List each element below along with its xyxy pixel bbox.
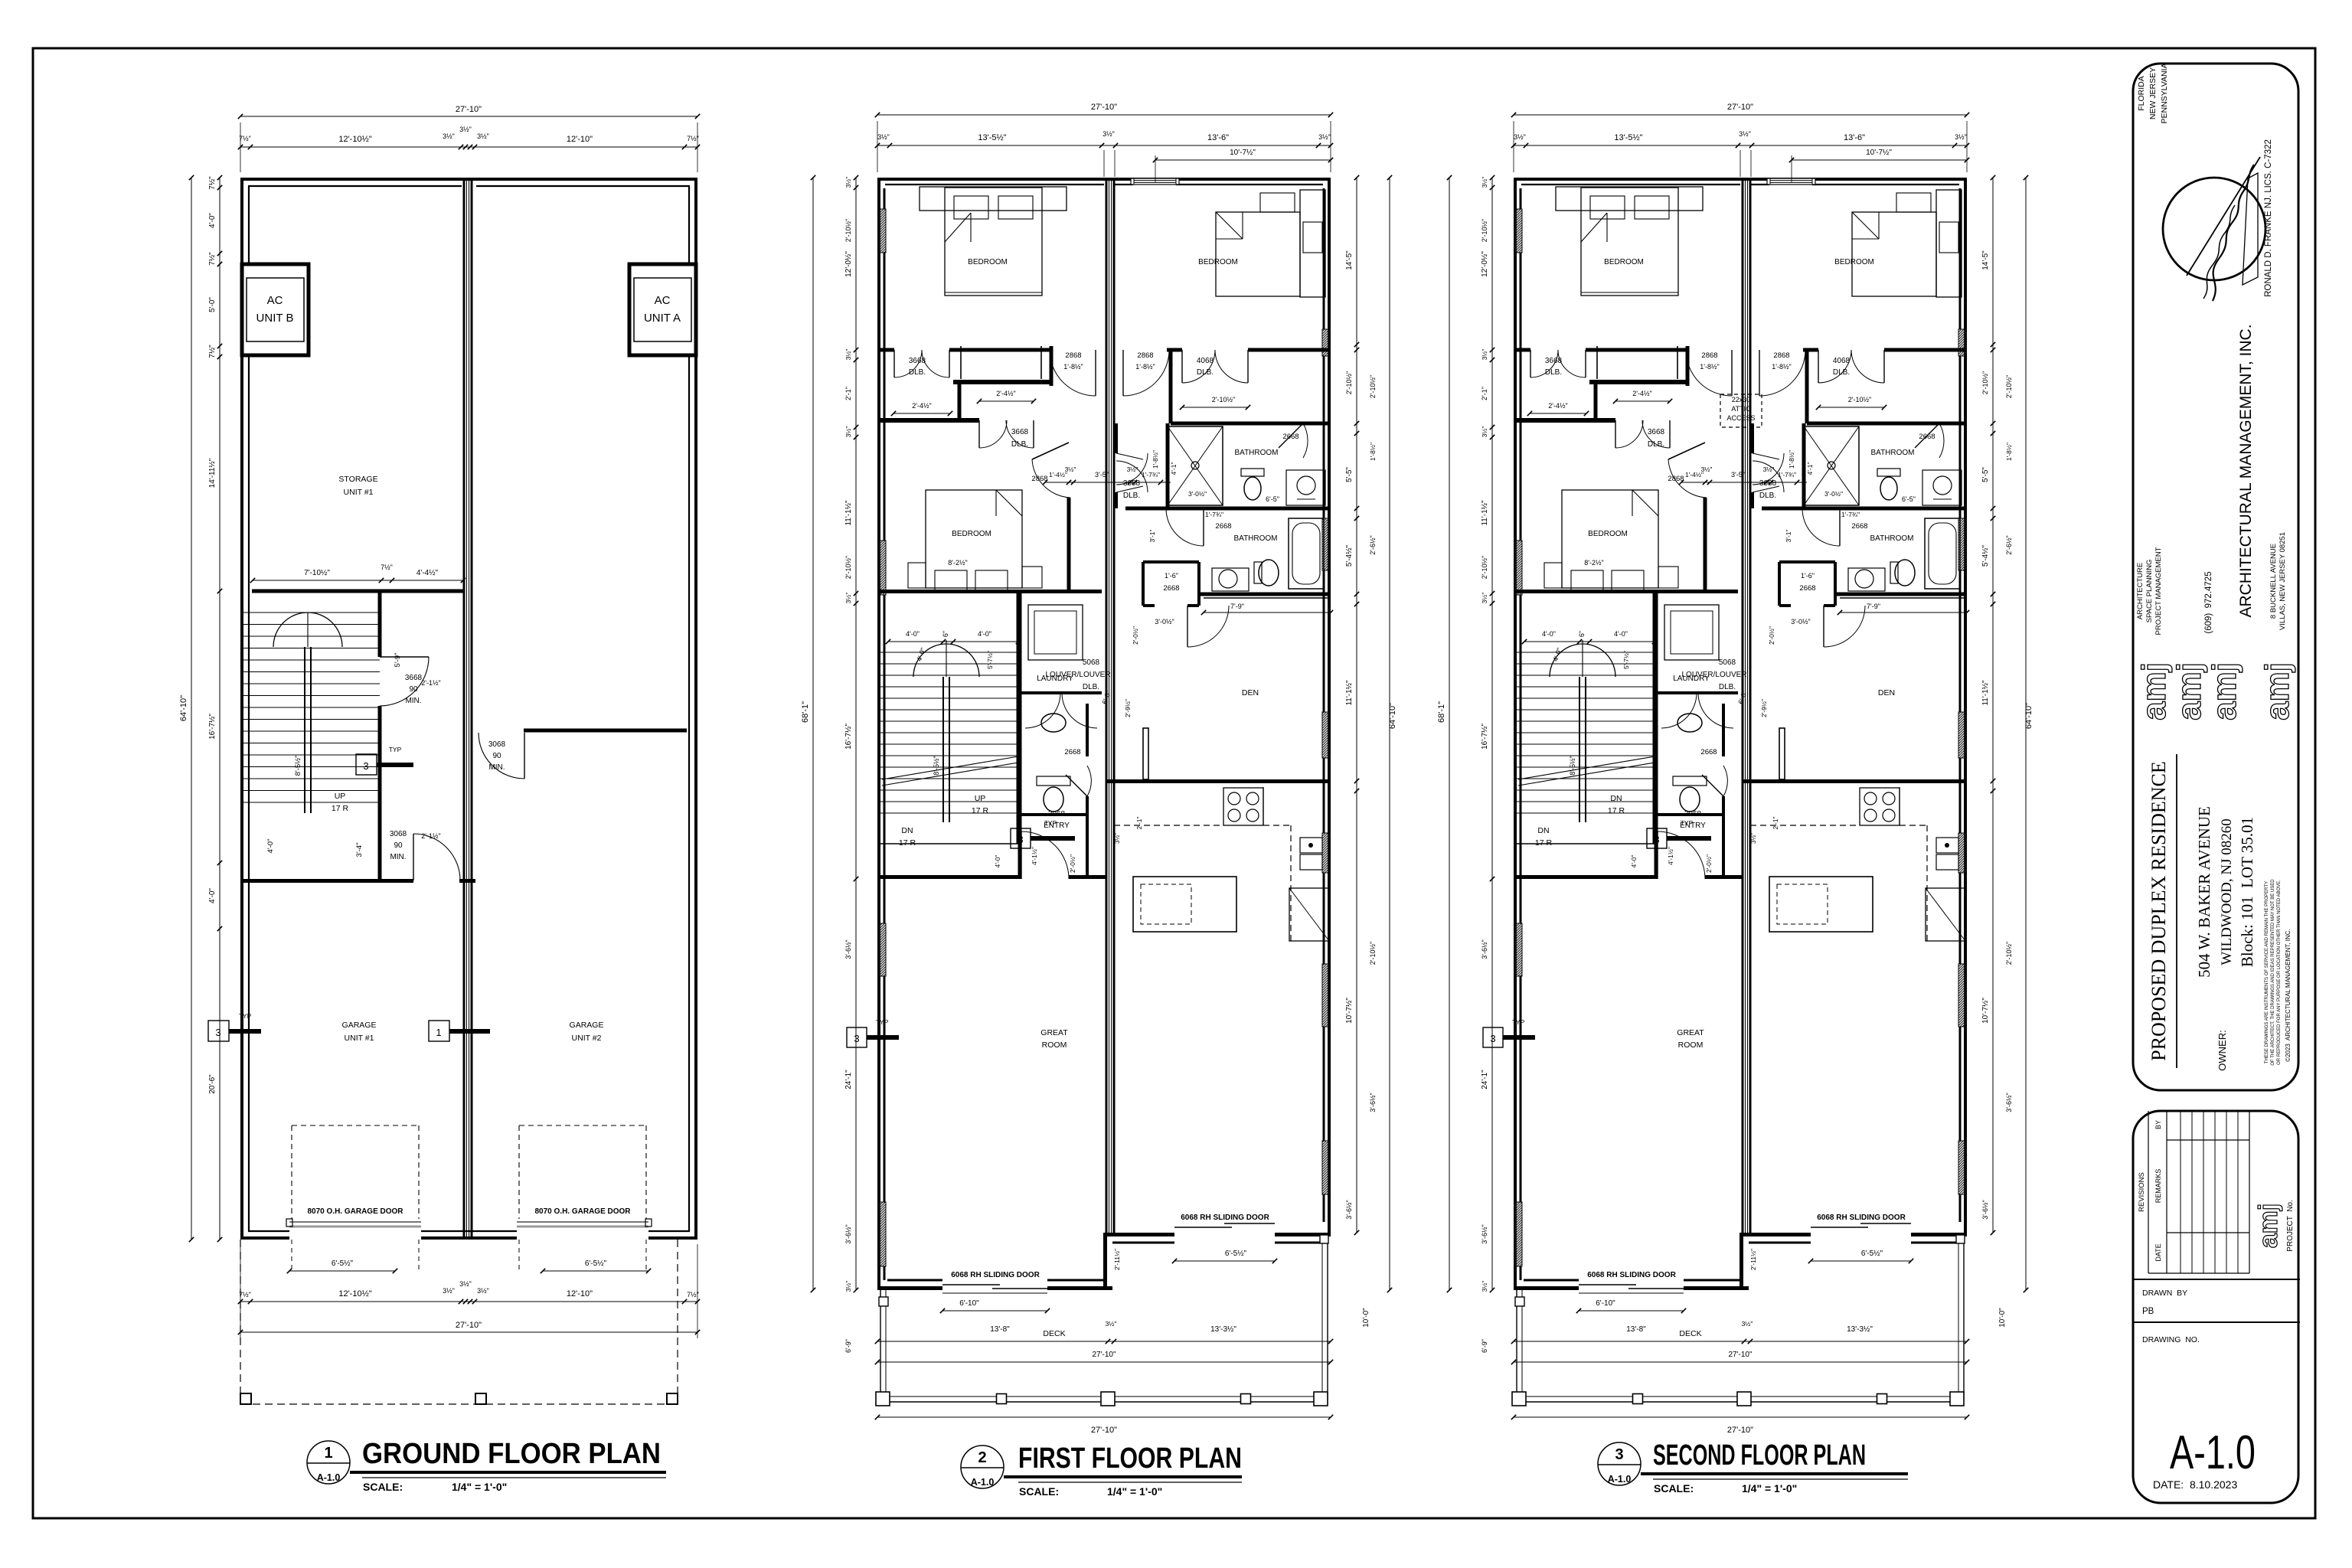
svg-text:2'-1": 2'-1" (844, 387, 852, 400)
svg-text:VILLAS, NEW JERSEY 08251: VILLAS, NEW JERSEY 08251 (2278, 532, 2287, 630)
svg-text:1'-7¾": 1'-7¾" (1841, 511, 1860, 518)
svg-text:2'-10½": 2'-10½" (844, 556, 852, 579)
svg-text:2'-0½": 2'-0½" (1069, 854, 1076, 873)
svg-text:DLB.: DLB. (909, 368, 926, 377)
svg-text:2'-10½": 2'-10½" (1369, 942, 1377, 965)
svg-text:8'-5½": 8'-5½" (933, 756, 940, 775)
svg-text:GARAGE: GARAGE (342, 1021, 377, 1030)
svg-text:10'-7½": 10'-7½" (1981, 998, 1990, 1024)
svg-text:2'-4½": 2'-4½" (1548, 402, 1567, 410)
svg-text:2'-10½": 2'-10½" (1848, 396, 1871, 403)
svg-text:2'-10½": 2'-10½" (1981, 371, 1989, 394)
svg-text:UNIT #1: UNIT #1 (345, 1034, 374, 1043)
svg-text:PROPOSED DUPLEX RESIDENCE: PROPOSED DUPLEX RESIDENCE (2148, 761, 2170, 1061)
svg-text:3½": 3½" (1114, 833, 1121, 844)
svg-text:4'-0": 4'-0" (1630, 855, 1638, 868)
svg-text:3668: 3668 (1011, 428, 1029, 436)
svg-text:7½": 7½" (239, 1291, 251, 1298)
svg-text:17 R: 17 R (1608, 806, 1625, 815)
svg-text:64'-10": 64'-10" (1388, 703, 1397, 729)
svg-text:3½": 3½" (1481, 177, 1488, 188)
svg-text:12'-10½": 12'-10½" (338, 135, 371, 144)
svg-text:DEN: DEN (1242, 688, 1259, 697)
svg-text:1'-8½": 1'-8½" (1788, 450, 1795, 469)
svg-text:24'-1": 24'-1" (844, 1070, 853, 1089)
svg-text:MIN.: MIN. (405, 697, 421, 705)
svg-text:3'-6½": 3'-6½" (1345, 1200, 1353, 1219)
svg-text:DLB.: DLB. (1833, 368, 1850, 377)
svg-text:DRAWING NO.: DRAWING NO. (2142, 1335, 2200, 1344)
svg-text:6'-5½": 6'-5½" (1861, 1249, 1883, 1258)
svg-text:10'-7½": 10'-7½" (1230, 149, 1256, 157)
svg-text:LOUVER/LOUVER: LOUVER/LOUVER (1045, 671, 1110, 679)
svg-text:24'-1": 24'-1" (1481, 1070, 1489, 1089)
svg-text:3½": 3½" (844, 1281, 852, 1292)
svg-text:12'-10½": 12'-10½" (338, 1289, 371, 1298)
svg-text:THESE DRAWINGS ARE INSTRUMENTS: THESE DRAWINGS ARE INSTRUMENTS OF SERVIC… (2265, 881, 2269, 1063)
svg-text:3'-0½": 3'-0½" (1824, 490, 1843, 498)
svg-text:3668: 3668 (405, 674, 423, 682)
svg-text:11'-1½": 11'-1½" (844, 500, 853, 526)
svg-text:2'-10½": 2'-10½" (1345, 371, 1353, 394)
svg-text:64'-10": 64'-10" (179, 695, 188, 721)
svg-text:BEDROOM: BEDROOM (952, 530, 991, 538)
svg-text:7½": 7½" (381, 563, 393, 571)
svg-text:6'-5½": 6'-5½" (585, 1259, 607, 1268)
svg-text:12'-10": 12'-10" (567, 135, 593, 144)
svg-text:2668: 2668 (1282, 433, 1298, 441)
svg-text:1'-6": 1'-6" (1165, 572, 1178, 580)
svg-text:6": 6" (942, 631, 949, 637)
svg-text:UP: UP (975, 794, 986, 803)
svg-text:11'-1½": 11'-1½" (1981, 680, 1990, 706)
svg-text:3½": 3½" (1750, 833, 1757, 844)
svg-text:OWNER:: OWNER: (2216, 1030, 2228, 1070)
svg-text:REMARKS: REMARKS (2154, 1169, 2162, 1204)
svg-text:4'-4½": 4'-4½" (416, 569, 439, 577)
svg-text:3'-5": 3'-5" (1731, 471, 1745, 479)
svg-text:6'-5½": 6'-5½" (1225, 1249, 1247, 1258)
svg-text:3: 3 (215, 1027, 220, 1038)
svg-text:NEW JERSEY: NEW JERSEY (2148, 67, 2158, 119)
svg-text:4'-0": 4'-0" (994, 855, 1001, 868)
svg-text:3½": 3½" (1481, 426, 1488, 438)
svg-text:AC: AC (655, 294, 671, 307)
svg-text:2668: 2668 (1799, 584, 1815, 593)
svg-text:LOUVER/LOUVER: LOUVER/LOUVER (1681, 671, 1746, 679)
svg-text:6'-5": 6'-5" (1902, 495, 1916, 503)
svg-text:3½": 3½" (1739, 130, 1751, 138)
svg-text:4'-0": 4'-0" (208, 213, 217, 228)
svg-text:3½": 3½" (1481, 593, 1488, 604)
svg-text:3½": 3½" (443, 1287, 455, 1295)
svg-text:PB: PB (2142, 1307, 2154, 1316)
svg-text:7½": 7½" (208, 176, 217, 190)
svg-text:27'-10": 27'-10" (456, 105, 482, 114)
svg-text:2'-10½": 2'-10½" (1481, 556, 1488, 579)
svg-text:3: 3 (1654, 834, 1659, 845)
svg-text:10'-7½": 10'-7½" (1866, 149, 1892, 157)
svg-text:BEDROOM: BEDROOM (1604, 258, 1644, 266)
svg-text:3½": 3½" (1955, 133, 1967, 141)
svg-text:1'-8½": 1'-8½" (1151, 450, 1159, 469)
svg-text:10'-0": 10'-0" (1998, 1308, 2007, 1328)
svg-text:DLB.: DLB. (1011, 440, 1028, 449)
svg-text:PROJECT No.: PROJECT No. (2286, 1200, 2295, 1252)
svg-text:WILDWOOD, NJ 08260: WILDWOOD, NJ 08260 (2219, 818, 2235, 965)
svg-text:17 R: 17 R (899, 838, 916, 848)
svg-text:5068: 5068 (1719, 658, 1736, 667)
svg-text:DECK: DECK (1679, 1329, 1701, 1338)
svg-text:2868: 2868 (1701, 351, 1717, 360)
svg-text:TYP: TYP (1512, 1018, 1525, 1026)
svg-text:27'-10": 27'-10" (1727, 1426, 1753, 1435)
svg-text:3½": 3½" (844, 177, 852, 188)
svg-text:1'-8½": 1'-8½" (1772, 363, 1791, 371)
svg-text:A-1.0: A-1.0 (1608, 1474, 1632, 1485)
svg-text:DRAWN BY: DRAWN BY (2142, 1289, 2187, 1298)
svg-text:1'-8½": 1'-8½" (2005, 443, 2013, 461)
svg-text:2'-10½": 2'-10½" (1369, 375, 1377, 398)
svg-text:2'-4½": 2'-4½" (912, 402, 931, 410)
svg-text:4'-0": 4'-0" (1614, 630, 1628, 638)
svg-text:2'-11½": 2'-11½" (1113, 1249, 1121, 1270)
svg-text:ROOM: ROOM (1678, 1040, 1704, 1050)
svg-text:8070 O.H. GARAGE DOOR: 8070 O.H. GARAGE DOOR (534, 1207, 631, 1216)
svg-text:2668: 2668 (1215, 522, 1231, 531)
svg-text:13'-5½": 13'-5½" (1614, 133, 1642, 142)
svg-text:BATHROOM: BATHROOM (1870, 534, 1913, 543)
svg-text:90: 90 (409, 685, 418, 694)
svg-text:6'-9": 6'-9" (844, 1339, 852, 1353)
svg-text:2'-1½": 2'-1½" (421, 832, 440, 840)
svg-text:2'-6½": 2'-6½" (2005, 535, 2013, 554)
svg-text:7½": 7½" (239, 135, 251, 142)
svg-text:3668: 3668 (909, 357, 926, 365)
svg-text:1/4" = 1'-0": 1/4" = 1'-0" (1107, 1485, 1162, 1498)
svg-text:3'-6½": 3'-6½" (844, 1224, 852, 1243)
svg-text:6": 6" (1578, 631, 1586, 637)
svg-text:7½": 7½" (208, 345, 217, 358)
svg-text:4068: 4068 (1833, 357, 1851, 365)
svg-text:SCALE:: SCALE: (1019, 1485, 1059, 1498)
svg-text:20'-6": 20'-6" (208, 1074, 217, 1094)
svg-text:13'-5½": 13'-5½" (978, 133, 1006, 142)
svg-text:90: 90 (492, 752, 501, 760)
svg-text:3½": 3½" (1127, 465, 1138, 473)
svg-text:©2023 ARCHITECTURAL MANAGEMEN: ©2023 ARCHITECTURAL MANAGEMENT, INC. (2285, 929, 2292, 1062)
svg-text:Block: 101 LOT 35.01: Block: 101 LOT 35.01 (2238, 817, 2256, 967)
svg-text:2668: 2668 (1163, 584, 1179, 593)
svg-text:1'-8½": 1'-8½" (1700, 363, 1719, 371)
svg-text:SCALE:: SCALE: (1654, 1482, 1694, 1494)
svg-text:2'-11½": 2'-11½" (1749, 1249, 1757, 1270)
svg-text:4'-1": 4'-1" (1170, 462, 1178, 475)
svg-text:27'-10": 27'-10" (1091, 1426, 1117, 1435)
svg-text:BEDROOM: BEDROOM (1588, 530, 1628, 538)
svg-text:3½": 3½" (443, 132, 455, 140)
svg-text:6'-10": 6'-10" (959, 1299, 979, 1308)
svg-text:3'-6½": 3'-6½" (2005, 1093, 2013, 1112)
svg-text:amj: amj (2206, 662, 2243, 720)
svg-text:MIN.: MIN. (488, 763, 505, 772)
svg-text:4'-0": 4'-0" (978, 630, 991, 638)
svg-text:RONALD D. FRANKE NJ. LICS. C-7: RONALD D. FRANKE NJ. LICS. C-7322 (2264, 139, 2273, 297)
svg-text:ARCHITECTURE: ARCHITECTURE (2136, 563, 2145, 619)
svg-text:TYP: TYP (1681, 819, 1694, 827)
svg-text:DLB.: DLB. (1759, 492, 1776, 500)
svg-text:1/4" = 1'-0": 1/4" = 1'-0" (452, 1481, 507, 1493)
svg-text:10'-7½": 10'-7½" (1345, 998, 1354, 1024)
svg-text:3½": 3½" (844, 349, 852, 361)
svg-text:14'-5": 14'-5" (1981, 250, 1990, 270)
svg-text:1'-7¾": 1'-7¾" (1778, 471, 1796, 479)
svg-text:14'-11½": 14'-11½" (208, 458, 217, 488)
svg-text:DEN: DEN (1878, 688, 1895, 697)
svg-text:GREAT: GREAT (1677, 1028, 1704, 1037)
svg-text:DATE: DATE (2154, 1243, 2162, 1261)
svg-text:3068: 3068 (488, 740, 506, 749)
svg-text:1: 1 (436, 1027, 441, 1038)
svg-text:4'-0": 4'-0" (1542, 630, 1556, 638)
svg-text:DN: DN (1610, 794, 1622, 803)
svg-text:22x30: 22x30 (1732, 396, 1751, 403)
svg-text:504 W. BAKER AVENUE: 504 W. BAKER AVENUE (2195, 806, 2213, 978)
svg-text:6'-10": 6'-10" (1596, 1299, 1615, 1308)
svg-text:amj: amj (2259, 662, 2296, 720)
svg-text:3'-6½": 3'-6½" (1981, 1200, 1989, 1219)
svg-text:3'-4": 3'-4" (355, 843, 364, 857)
svg-text:13'-6": 13'-6" (1207, 133, 1229, 142)
svg-text:8 BUCKNELL AVENUE: 8 BUCKNELL AVENUE (2269, 544, 2278, 619)
svg-text:BATHROOM: BATHROOM (1870, 449, 1914, 457)
svg-text:8'-2½": 8'-2½" (948, 559, 967, 567)
svg-text:OR REPRODUCED FOR ANY PURPOSE: OR REPRODUCED FOR ANY PURPOSE OR LOCATIO… (2277, 880, 2282, 1065)
svg-text:7'-10½": 7'-10½" (304, 569, 330, 577)
svg-text:1'-8½": 1'-8½" (1369, 443, 1377, 461)
svg-text:6068 RH SLIDING DOOR: 6068 RH SLIDING DOOR (1817, 1214, 1906, 1222)
svg-text:3668: 3668 (1545, 357, 1563, 365)
svg-text:8'-5½": 8'-5½" (1569, 756, 1576, 775)
svg-text:6068 RH SLIDING DOOR: 6068 RH SLIDING DOOR (1587, 1271, 1676, 1279)
svg-text:16'-7½": 16'-7½" (844, 724, 853, 750)
svg-text:12'-0½": 12'-0½" (1481, 251, 1489, 277)
svg-text:3½": 3½" (1514, 133, 1526, 141)
svg-text:UP: UP (335, 792, 346, 801)
svg-text:2868: 2868 (1137, 351, 1153, 360)
svg-text:FIRST FLOOR PLAN: FIRST FLOOR PLAN (1018, 1442, 1242, 1475)
svg-text:BEDROOM: BEDROOM (968, 258, 1008, 266)
svg-text:amj: amj (2135, 662, 2173, 720)
svg-text:7'-9": 7'-9" (1867, 603, 1880, 610)
svg-text:3068: 3068 (1684, 810, 1702, 818)
svg-text:2'-10½": 2'-10½" (844, 219, 852, 242)
svg-text:FLORIDA: FLORIDA (2137, 76, 2146, 111)
svg-text:3½": 3½" (1742, 1320, 1753, 1328)
svg-text:3: 3 (363, 760, 368, 772)
svg-text:DLB.: DLB. (1545, 368, 1562, 377)
svg-text:3½": 3½" (477, 132, 489, 140)
svg-text:6068 RH SLIDING DOOR: 6068 RH SLIDING DOOR (951, 1271, 1040, 1279)
svg-text:13'-3½": 13'-3½" (1210, 1325, 1236, 1334)
svg-text:6'-5½": 6'-5½" (332, 1259, 354, 1268)
svg-text:ARCHITECTURAL MANAGEMENT, INC.: ARCHITECTURAL MANAGEMENT, INC. (2237, 324, 2255, 617)
svg-text:TYP: TYP (389, 746, 402, 753)
svg-text:3: 3 (1615, 1446, 1623, 1463)
svg-text:27'-10": 27'-10" (1727, 103, 1753, 112)
svg-text:16'-7½": 16'-7½" (1481, 724, 1489, 750)
svg-text:DATE: 8.10.2023: DATE: 8.10.2023 (2153, 1478, 2237, 1491)
svg-text:4'-1½": 4'-1½" (1667, 847, 1674, 865)
svg-text:DN: DN (1537, 826, 1549, 835)
svg-text:8'-5½": 8'-5½" (294, 756, 302, 776)
svg-text:3: 3 (1490, 1033, 1495, 1044)
svg-text:2'-1": 2'-1" (1481, 387, 1488, 400)
svg-text:7'-9": 7'-9" (1230, 603, 1244, 610)
svg-text:7½": 7½" (687, 135, 699, 142)
svg-text:DLB.: DLB. (1197, 368, 1214, 377)
svg-text:11'-1½": 11'-1½" (1345, 680, 1354, 706)
svg-text:A-1.0: A-1.0 (2170, 1426, 2256, 1479)
svg-text:BATHROOM: BATHROOM (1234, 449, 1278, 457)
svg-text:2'-9½": 2'-9½" (1760, 699, 1768, 717)
svg-text:27'-10": 27'-10" (1091, 103, 1117, 112)
svg-text:AC: AC (267, 294, 283, 307)
svg-text:STORAGE: STORAGE (338, 475, 377, 484)
svg-text:3½": 3½" (1701, 465, 1713, 473)
svg-text:TYP: TYP (239, 1012, 252, 1020)
svg-text:2'-10½": 2'-10½" (1481, 219, 1488, 242)
svg-text:DN: DN (901, 826, 913, 835)
svg-text:3068: 3068 (390, 830, 407, 838)
svg-text:A-1.0: A-1.0 (971, 1477, 995, 1488)
svg-text:10'-0": 10'-0" (1362, 1308, 1370, 1328)
svg-text:1'-8½": 1'-8½" (1135, 363, 1155, 371)
svg-text:5068: 5068 (1083, 658, 1100, 667)
svg-text:3½": 3½" (1481, 1281, 1488, 1292)
svg-text:BY: BY (2154, 1120, 2162, 1129)
svg-text:5'-7½": 5'-7½" (986, 651, 994, 669)
svg-text:4'-1": 4'-1" (1806, 462, 1814, 475)
svg-text:2'-1½": 2'-1½" (421, 679, 440, 687)
svg-text:GREAT: GREAT (1040, 1028, 1068, 1037)
svg-text:2: 2 (978, 1449, 986, 1466)
svg-text:3'-0½": 3'-0½" (1188, 490, 1207, 498)
svg-text:3'-0½": 3'-0½" (1791, 618, 1810, 626)
svg-text:3½": 3½" (1763, 465, 1775, 473)
svg-text:2'-10½": 2'-10½" (2005, 375, 2013, 398)
svg-text:3'-6½": 3'-6½" (844, 939, 852, 959)
svg-text:1'-7¾": 1'-7¾" (1205, 511, 1223, 518)
svg-text:13'-3½": 13'-3½" (1847, 1325, 1873, 1334)
svg-text:12'-10": 12'-10" (567, 1289, 593, 1298)
svg-text:68'-1": 68'-1" (801, 701, 810, 723)
svg-text:(609) 972.4725: (609) 972.4725 (2204, 571, 2213, 633)
svg-text:5'-0": 5'-0" (208, 297, 217, 312)
svg-text:68'-1": 68'-1" (1437, 701, 1446, 723)
svg-text:TYP: TYP (876, 1018, 889, 1026)
svg-text:GROUND FLOOR PLAN: GROUND FLOOR PLAN (362, 1438, 661, 1470)
svg-text:3½": 3½" (459, 126, 472, 133)
svg-text:5'-7½": 5'-7½" (1622, 651, 1630, 669)
svg-text:GARAGE: GARAGE (570, 1021, 604, 1030)
svg-text:2'-0½": 2'-0½" (1705, 854, 1713, 873)
svg-text:6068 RH SLIDING DOOR: 6068 RH SLIDING DOOR (1181, 1214, 1269, 1222)
svg-text:2'-9½": 2'-9½" (1124, 699, 1132, 717)
svg-text:MIN.: MIN. (390, 853, 406, 861)
svg-text:REVISIONS: REVISIONS (2138, 1172, 2146, 1212)
svg-text:2'-6½": 2'-6½" (1369, 535, 1377, 554)
svg-text:2668: 2668 (1064, 748, 1080, 756)
svg-text:6'-5": 6'-5" (1266, 495, 1279, 503)
svg-text:1'-8½": 1'-8½" (1063, 363, 1083, 371)
svg-text:3½": 3½" (844, 593, 852, 604)
svg-text:3'-5": 3'-5" (1095, 471, 1109, 479)
svg-text:64'-10": 64'-10" (2024, 703, 2033, 729)
svg-text:3½": 3½" (1481, 349, 1488, 361)
svg-text:3½": 3½" (1065, 465, 1076, 473)
svg-text:DLB.: DLB. (1123, 492, 1140, 500)
svg-text:1'-6": 1'-6" (1801, 572, 1815, 580)
svg-text:13'-6": 13'-6" (1844, 133, 1865, 142)
svg-text:5'-4½": 5'-4½" (1345, 544, 1354, 567)
svg-text:2668: 2668 (1919, 433, 1935, 441)
svg-text:4'-0": 4'-0" (208, 888, 217, 903)
svg-text:2'-10½": 2'-10½" (2005, 942, 2013, 965)
svg-text:UNIT A: UNIT A (644, 312, 681, 325)
svg-text:11'-1½": 11'-1½" (1481, 500, 1489, 526)
svg-text:BEDROOM: BEDROOM (1198, 258, 1238, 266)
svg-text:3: 3 (854, 1033, 859, 1044)
svg-text:DLB.: DLB. (1083, 683, 1099, 691)
svg-text:TYP: TYP (1044, 819, 1057, 827)
svg-text:3½": 3½" (1106, 1320, 1117, 1328)
svg-text:SECOND FLOOR PLAN: SECOND FLOOR PLAN (1653, 1439, 1866, 1472)
svg-text:3'-6½": 3'-6½" (1369, 1093, 1377, 1112)
svg-text:14'-5": 14'-5" (1345, 250, 1354, 270)
svg-text:3½": 3½" (844, 426, 852, 438)
svg-text:27'-10": 27'-10" (456, 1321, 482, 1330)
svg-text:2'-4½": 2'-4½" (996, 390, 1015, 397)
svg-text:16'-7½": 16'-7½" (208, 714, 217, 740)
svg-text:2668: 2668 (1851, 522, 1867, 531)
svg-text:3'-6½": 3'-6½" (1481, 1224, 1488, 1243)
svg-text:4'-0": 4'-0" (266, 839, 275, 854)
svg-text:27'-10": 27'-10" (1092, 1351, 1116, 1359)
svg-text:BEDROOM: BEDROOM (1834, 258, 1874, 266)
svg-text:amj: amj (2254, 1204, 2283, 1249)
svg-text:SCALE:: SCALE: (363, 1481, 403, 1493)
svg-text:3'-1": 3'-1" (1148, 530, 1156, 543)
svg-text:ROOM: ROOM (1042, 1040, 1067, 1050)
svg-text:3068: 3068 (1048, 810, 1066, 818)
svg-text:ATTIC: ATTIC (1731, 405, 1751, 413)
svg-text:12'-0½": 12'-0½" (844, 251, 853, 277)
svg-text:amj: amj (2171, 662, 2208, 720)
svg-text:UNIT B: UNIT B (256, 312, 294, 325)
svg-text:2'-0½": 2'-0½" (1768, 626, 1775, 645)
svg-text:2868: 2868 (1773, 351, 1789, 360)
svg-text:2'-1": 2'-1" (1135, 817, 1143, 830)
svg-text:90: 90 (394, 841, 403, 850)
svg-text:PENNSYLVANIA: PENNSYLVANIA (2160, 64, 2169, 124)
svg-text:17 R: 17 R (332, 804, 349, 813)
svg-text:3½": 3½" (877, 133, 890, 141)
svg-text:8070 O.H. GARAGE DOOR: 8070 O.H. GARAGE DOOR (307, 1207, 403, 1216)
svg-text:3: 3 (1018, 834, 1023, 845)
svg-text:5'-5": 5'-5" (1981, 467, 1990, 482)
svg-text:UNIT #1: UNIT #1 (344, 488, 374, 497)
